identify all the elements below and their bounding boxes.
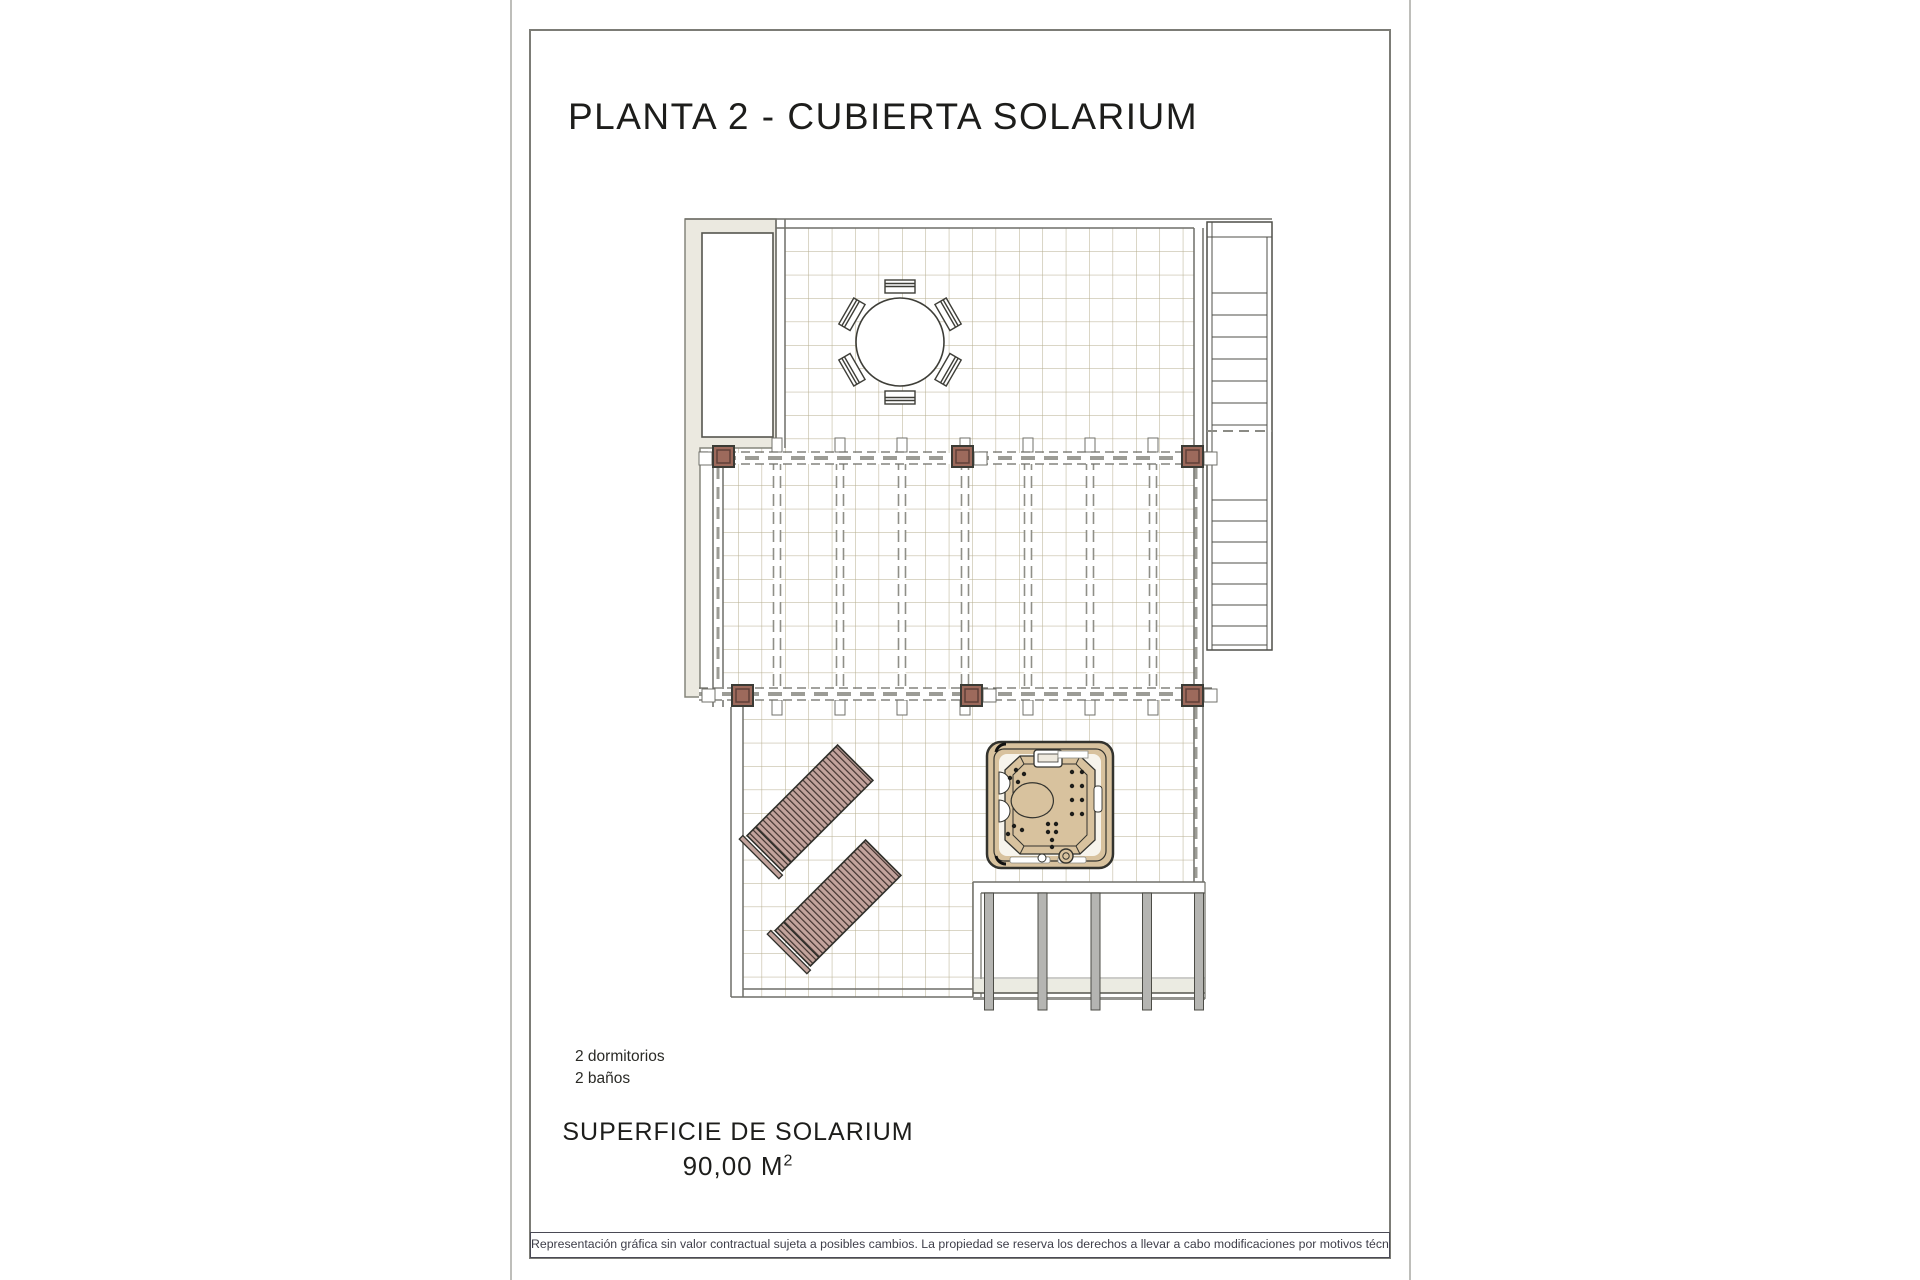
roof-terrace (785, 228, 1194, 448)
disclaimer-note: Representación gráfica sin valor contrac… (530, 1232, 1390, 1258)
dining-table (856, 298, 944, 386)
area-block: SUPERFICIE DE SOLARIUM 90,00 M2 (560, 1118, 916, 1182)
skylight (702, 233, 773, 437)
feature-bathrooms: 2 baños (575, 1068, 665, 1090)
pergola-floor (723, 448, 1194, 707)
hot-tub (987, 742, 1113, 868)
lower-structure (973, 882, 1205, 1010)
features-list: 2 dormitorios 2 baños (575, 1046, 665, 1090)
drawing-sheet: PLANTA 2 - CUBIERTA SOLARIUM 2 dormitori… (0, 0, 1920, 1280)
feature-bedrooms: 2 dormitorios (575, 1046, 665, 1068)
area-label: SUPERFICIE DE SOLARIUM (560, 1118, 916, 1147)
floor-plan (0, 0, 1920, 1280)
area-superscript: 2 (784, 1152, 794, 1169)
staircase (1207, 222, 1272, 650)
page-title: PLANTA 2 - CUBIERTA SOLARIUM (568, 96, 1198, 138)
area-value: 90,00 M2 (560, 1151, 916, 1182)
